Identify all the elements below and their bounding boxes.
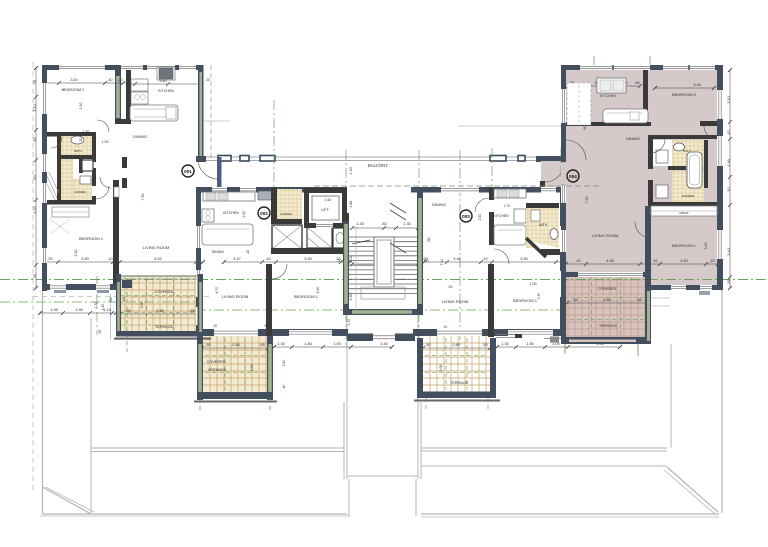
svg-text:.50: .50: [425, 342, 431, 347]
svg-text:.50: .50: [98, 330, 102, 335]
svg-text:.60: .60: [583, 126, 587, 131]
svg-text:3.10: 3.10: [79, 103, 83, 110]
svg-text:1.80: 1.80: [304, 341, 312, 346]
svg-text:.55: .55: [572, 297, 577, 302]
svg-text:DINING: DINING: [626, 136, 640, 141]
svg-text:1.00: 1.00: [552, 341, 560, 346]
svg-text:.20: .20: [575, 258, 581, 263]
svg-text:5.40: 5.40: [160, 79, 167, 83]
svg-text:SHOWER: SHOWER: [280, 212, 292, 216]
svg-text:.50: .50: [32, 136, 37, 142]
svg-text:.55: .55: [205, 342, 210, 347]
svg-text:LIVING ROOM: LIVING ROOM: [442, 299, 469, 304]
svg-text:1.30: 1.30: [83, 130, 90, 134]
svg-text:.40: .40: [108, 78, 113, 82]
svg-text:.55: .55: [636, 297, 641, 302]
svg-text:COVERED: COVERED: [207, 360, 226, 364]
svg-text:LIVING ROOM: LIVING ROOM: [143, 245, 170, 250]
svg-text:2.34: 2.34: [349, 256, 353, 263]
svg-text:2.80: 2.80: [156, 308, 164, 313]
svg-text:BALCONY: BALCONY: [368, 163, 388, 168]
svg-text:1.10: 1.10: [347, 319, 351, 326]
svg-text:1.05: 1.05: [50, 307, 58, 312]
svg-text:3.10: 3.10: [726, 95, 731, 103]
svg-text:BATH: BATH: [683, 149, 690, 153]
svg-text:BEDROOM 1: BEDROOM 1: [672, 243, 697, 248]
svg-text:1.30: 1.30: [94, 302, 98, 309]
svg-text:.50: .50: [79, 138, 83, 143]
svg-text:.20: .20: [118, 78, 123, 82]
svg-text:BEDROOM 1: BEDROOM 1: [294, 294, 319, 299]
svg-text:.50: .50: [482, 342, 488, 347]
svg-text:7.50: 7.50: [141, 194, 145, 201]
svg-text:3.50: 3.50: [520, 256, 528, 261]
svg-text:7.00: 7.00: [585, 197, 589, 204]
svg-text:.55: .55: [125, 308, 130, 313]
svg-text:2.50: 2.50: [478, 214, 482, 221]
svg-text:DINING: DINING: [432, 202, 446, 207]
svg-text:20: 20: [206, 78, 210, 82]
svg-text:3.10: 3.10: [32, 103, 37, 111]
svg-text:.50: .50: [264, 324, 269, 328]
svg-text:.20: .20: [47, 256, 53, 261]
svg-text:LIVING ROOM: LIVING ROOM: [592, 233, 619, 238]
svg-text:COVERED: COVERED: [155, 290, 174, 294]
svg-text:COVERED: COVERED: [598, 287, 617, 291]
svg-text:1.50: 1.50: [75, 307, 83, 312]
svg-text:004: 004: [569, 174, 577, 179]
svg-text:3.40: 3.40: [81, 256, 89, 261]
svg-text:.55: .55: [189, 308, 194, 313]
svg-text:.55: .55: [259, 342, 264, 347]
svg-text:SHOWER: SHOWER: [682, 194, 695, 198]
svg-text:.10: .10: [726, 129, 731, 135]
svg-text:SHOWER: SHOWER: [74, 190, 86, 194]
svg-text:7.10: 7.10: [440, 259, 444, 266]
svg-text:001: 001: [184, 169, 192, 174]
svg-text:2.80: 2.80: [452, 342, 460, 347]
svg-text:.20: .20: [443, 325, 448, 329]
svg-text:2.60: 2.60: [282, 360, 286, 367]
svg-text:.20: .20: [424, 259, 429, 263]
svg-text:LIFT: LIFT: [321, 208, 329, 212]
svg-text:TERRACE: TERRACE: [599, 324, 618, 328]
svg-text:.80: .80: [381, 221, 387, 226]
svg-text:BEDROOM 2: BEDROOM 2: [672, 92, 697, 97]
svg-text:.20: .20: [448, 285, 453, 289]
svg-text:3.40: 3.40: [726, 247, 731, 255]
svg-text:3.00: 3.00: [439, 365, 443, 372]
svg-text:.10: .10: [726, 186, 731, 192]
svg-text:1.90: 1.90: [726, 158, 731, 166]
svg-text:DINING: DINING: [212, 250, 225, 254]
svg-text:.20: .20: [709, 258, 715, 263]
svg-text:.80: .80: [427, 238, 431, 243]
svg-text:1.00: 1.00: [333, 341, 341, 346]
svg-text:TERRACE: TERRACE: [155, 325, 174, 329]
svg-text:3.40: 3.40: [453, 256, 461, 261]
svg-text:3.40: 3.40: [71, 78, 78, 82]
svg-text:1.50: 1.50: [349, 294, 353, 301]
svg-text:.40: .40: [122, 298, 126, 303]
svg-text:.10: .10: [107, 256, 113, 261]
svg-text:4.05: 4.05: [606, 258, 614, 263]
svg-text:3.00: 3.00: [140, 302, 144, 309]
svg-text:2.50: 2.50: [242, 211, 246, 218]
svg-text:LIVING ROOM: LIVING ROOM: [222, 294, 249, 299]
svg-text:1.80: 1.80: [526, 341, 534, 346]
svg-text:002: 002: [260, 211, 268, 216]
svg-text:.50: .50: [109, 298, 113, 303]
svg-text:2.80: 2.80: [603, 297, 611, 302]
svg-text:1.30: 1.30: [501, 341, 509, 346]
svg-text:BEDROOM 1: BEDROOM 1: [79, 236, 104, 241]
svg-text:1.30: 1.30: [277, 341, 285, 346]
svg-text:003: 003: [462, 214, 470, 219]
svg-text:1.60: 1.60: [325, 198, 331, 202]
svg-text:.10: .10: [652, 258, 658, 263]
svg-text:TERRACE: TERRACE: [450, 381, 469, 385]
svg-text:BEDROOM 2: BEDROOM 2: [62, 88, 85, 92]
svg-text:KITCHEN: KITCHEN: [158, 89, 174, 93]
svg-text:4.02: 4.02: [154, 256, 162, 261]
svg-text:.20: .20: [213, 324, 218, 328]
svg-text:3.40: 3.40: [304, 256, 312, 261]
svg-text:2.80: 2.80: [232, 342, 240, 347]
svg-text:1.70: 1.70: [504, 204, 510, 208]
svg-text:2.86: 2.86: [349, 201, 353, 208]
svg-text:3.40: 3.40: [704, 243, 708, 250]
svg-text:1.00: 1.00: [530, 282, 537, 286]
svg-text:.50: .50: [32, 174, 37, 180]
svg-text:3.40: 3.40: [693, 82, 701, 87]
svg-text:KITCHEN: KITCHEN: [223, 211, 239, 215]
svg-text:3.47: 3.47: [233, 256, 241, 261]
svg-text:KITCHEN: KITCHEN: [600, 94, 616, 98]
svg-text:1.30: 1.30: [356, 221, 364, 226]
svg-text:BEDROOM 1: BEDROOM 1: [513, 298, 538, 303]
svg-text:KITCHEN: KITCHEN: [494, 214, 509, 218]
svg-text:3.40: 3.40: [74, 250, 78, 257]
svg-text:.20: .20: [337, 259, 342, 263]
svg-text:DRESS: DRESS: [680, 211, 689, 215]
svg-text:.40: .40: [282, 385, 286, 390]
svg-text:1.00: 1.00: [102, 140, 109, 144]
svg-text:3.40: 3.40: [380, 341, 388, 346]
svg-text:VERANDA: VERANDA: [208, 368, 227, 372]
svg-text:3.40: 3.40: [32, 205, 37, 213]
svg-text:DINING: DINING: [133, 134, 147, 139]
svg-text:1.30: 1.30: [403, 221, 411, 226]
svg-text:3.40: 3.40: [680, 258, 688, 263]
svg-text:3.00: 3.00: [250, 365, 254, 372]
svg-text:1.40: 1.40: [349, 167, 353, 174]
svg-text:.60: .60: [634, 80, 640, 85]
svg-text:.10: .10: [246, 250, 250, 255]
svg-text:4.50: 4.50: [316, 287, 320, 294]
svg-text:BATH: BATH: [74, 149, 81, 153]
svg-text:3.70: 3.70: [537, 293, 541, 300]
svg-text:BATH: BATH: [539, 223, 548, 227]
svg-text:1.15: 1.15: [103, 307, 111, 312]
svg-text:4.70: 4.70: [215, 287, 219, 294]
svg-text:.10: .10: [265, 256, 271, 261]
